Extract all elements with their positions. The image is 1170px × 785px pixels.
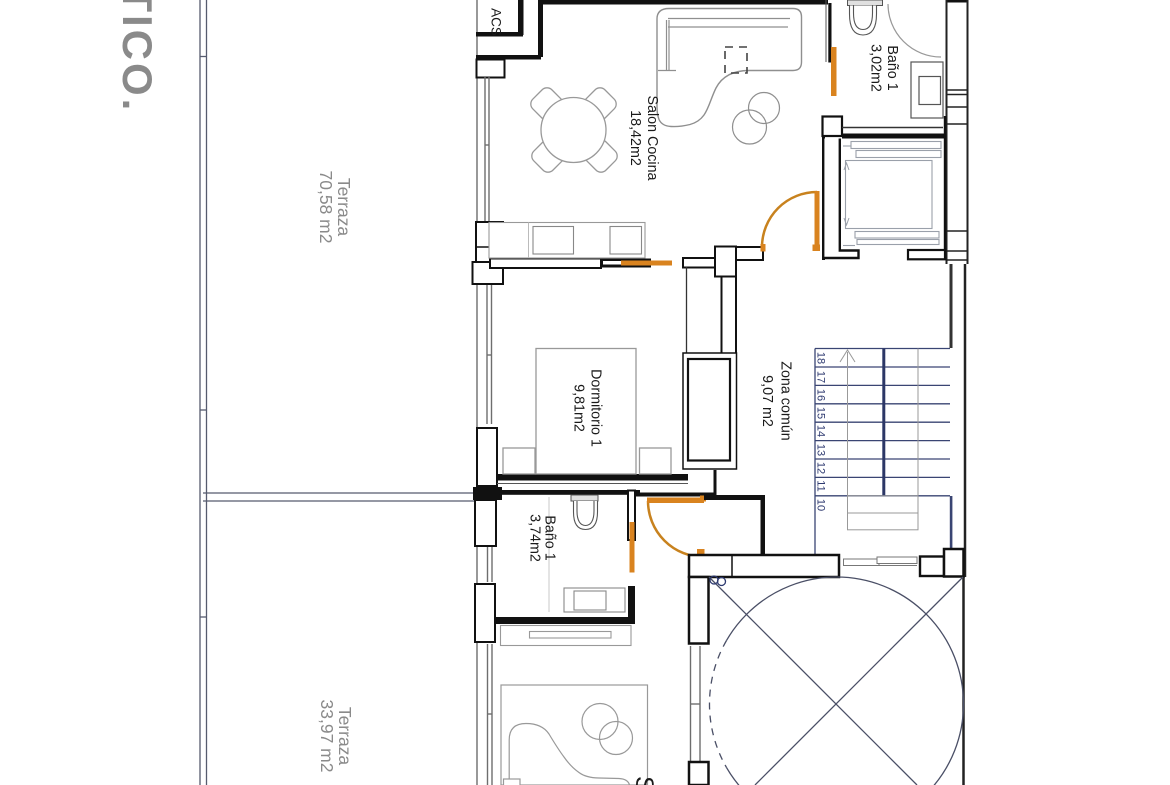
svg-text:Dormitorio 1: Dormitorio 1 [588, 369, 604, 447]
svg-text:17: 17 [815, 371, 827, 383]
svg-text:9,81m2: 9,81m2 [571, 384, 587, 432]
svg-text:ACS: ACS [489, 8, 504, 36]
svg-text:9,07 m2: 9,07 m2 [759, 375, 775, 427]
svg-text:3,02m2: 3,02m2 [868, 44, 884, 92]
svg-text:Terraza: Terraza [335, 707, 355, 766]
svg-text:12: 12 [815, 462, 827, 474]
svg-text:Salon Cocina: Salon Cocina [644, 95, 660, 180]
svg-text:11: 11 [815, 480, 827, 491]
svg-text:3,74m2: 3,74m2 [527, 514, 543, 562]
svg-text:15: 15 [815, 407, 827, 419]
svg-text:Baño 1: Baño 1 [542, 515, 558, 560]
svg-text:Baño 1: Baño 1 [884, 45, 900, 90]
svg-text:14: 14 [815, 425, 827, 437]
svg-text:70,58 m2: 70,58 m2 [316, 171, 336, 244]
svg-text:10: 10 [815, 499, 827, 511]
svg-text:33,97 m2: 33,97 m2 [317, 700, 337, 773]
svg-text:Salon Cocina: Salon Cocina [630, 776, 658, 785]
svg-text:18,42m2: 18,42m2 [627, 110, 643, 166]
svg-text:ÁTICO.: ÁTICO. [114, 0, 161, 113]
svg-text:18: 18 [815, 352, 827, 364]
svg-text:13: 13 [815, 444, 827, 456]
svg-text:Zona común: Zona común [778, 361, 794, 441]
svg-text:16: 16 [815, 389, 827, 401]
svg-text:Terraza: Terraza [334, 178, 354, 237]
